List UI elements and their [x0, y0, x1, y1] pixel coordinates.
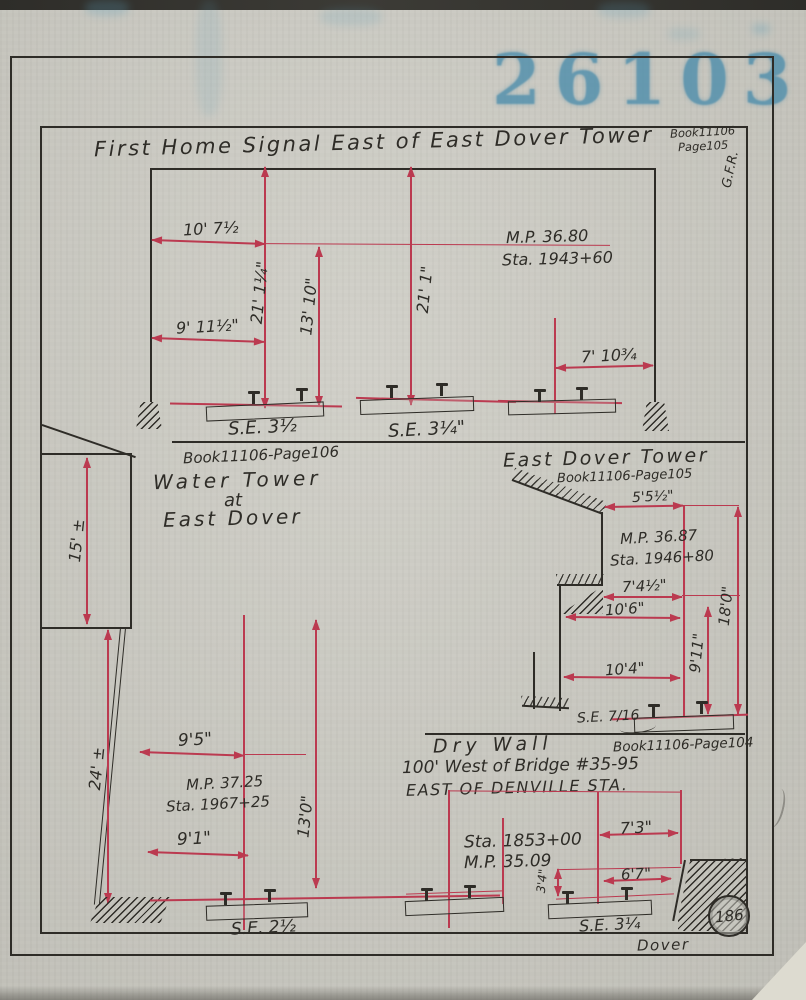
wall-top-line [690, 859, 746, 861]
dimension-line-24ft [107, 630, 109, 903]
milepost-36-80: M.P. 36.80 [506, 226, 589, 247]
dim-10-7-label: 10' 7½ [183, 218, 239, 240]
blue-smudge [85, 0, 129, 16]
red-projection-line [502, 818, 504, 904]
dimension-line-3-4 [557, 869, 559, 896]
red-projection-line [597, 792, 599, 904]
dimension-line-15ft [86, 458, 88, 624]
dim-9-11-label: 9' 11½" [176, 315, 240, 337]
tank-top-line [41, 453, 132, 455]
rail-section [625, 890, 628, 900]
dimension-line-13-0 [315, 620, 317, 888]
dim-5-5-label: 5'5½" [632, 488, 674, 506]
dimension-line-18-0 [737, 507, 739, 714]
red-projection-line [680, 790, 682, 864]
outer-border-left [10, 56, 12, 956]
dry-wall-title: Dry Wall [433, 732, 553, 757]
ledge-line [557, 584, 603, 586]
wall-face-line [559, 585, 561, 711]
dim-10-4-label: 10'4" [604, 659, 645, 680]
pencil-squiggle [763, 787, 788, 830]
page-number: 186 [714, 906, 744, 927]
bottom-edge-shadow [0, 986, 806, 1000]
dim-7-10-label: 7' 10¾ [581, 345, 637, 367]
rail-section [300, 391, 303, 401]
blue-smudge [196, 0, 222, 116]
dimension-line-7-4 [604, 596, 682, 598]
outer-border-top [10, 56, 773, 58]
tank-right-line [130, 453, 132, 629]
rail-section [580, 390, 583, 400]
blue-smudge [320, 8, 382, 26]
red-extension-line [683, 505, 739, 506]
station-1943-60: Sta. 1943+60 [502, 248, 613, 270]
page-number-badge: 186 [708, 895, 750, 937]
outer-border-bottom [10, 954, 773, 956]
rail-section [468, 888, 471, 898]
dim-9-5-label: 9'5" [178, 729, 213, 751]
dim-9-1-label: 9'1" [177, 828, 212, 850]
blue-smudge [752, 24, 770, 34]
dim-10-6-label: 10'6" [604, 599, 645, 620]
superelevation-label-1: S.E. 3½ [227, 415, 297, 440]
superelevation-label-2: S.E. 3¼" [388, 417, 466, 442]
dimension-line-13-10 [318, 247, 320, 406]
pole-ground-base [90, 897, 170, 923]
red-extension-line [244, 754, 306, 755]
signal-frame-top [150, 168, 655, 170]
outer-border-right [772, 56, 774, 956]
signal-frame-left [150, 168, 152, 402]
rail-section [700, 704, 703, 714]
water-tower-title-line3: East Dover [163, 504, 303, 532]
dim-3-4-label: 3'4" [534, 868, 550, 893]
rail-section [566, 894, 569, 904]
dim-7-4-label: 7'4½" [622, 576, 668, 596]
station-1853-00: Sta. 1853+00 [464, 829, 582, 852]
track-tie [508, 399, 616, 416]
rail-section [252, 394, 255, 404]
dim-6-7-label: 6'7" [621, 864, 652, 884]
superelevation-label-3: S.E. 2½ [231, 916, 297, 939]
rail-section [440, 386, 443, 396]
blue-number-stamp: 26103 [492, 38, 806, 121]
dimension-line-9-11v [707, 607, 709, 714]
rail-section [268, 892, 271, 902]
blue-smudge [598, 2, 650, 18]
title-book-ref-line2: Page105 [678, 138, 729, 155]
rail-section [390, 388, 393, 398]
tank-bottom-line [41, 627, 132, 629]
dry-wall-location: 100' West of Bridge #35-95 [402, 754, 639, 778]
location-caption: Dover [637, 935, 690, 954]
rail-section [538, 392, 541, 402]
signal-frame-right [654, 168, 656, 402]
dimension-line-21-1 [410, 167, 412, 405]
section-divider-line [172, 441, 745, 443]
superelevation-label-5: S.E. 3¼ [579, 913, 641, 935]
rail-section [224, 895, 227, 905]
dim-7-3-label: 7'3" [620, 817, 653, 838]
rail-section [425, 891, 428, 901]
rail-section [652, 707, 655, 717]
scanned-survey-sheet: 26103 First Home Signal East of East Dov… [0, 0, 806, 1000]
